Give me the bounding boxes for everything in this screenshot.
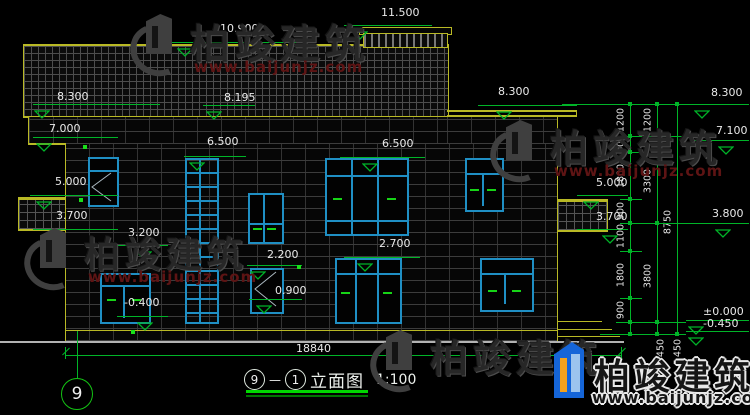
witness-line bbox=[620, 223, 712, 224]
elevation-label: 3.700 bbox=[56, 210, 88, 221]
watermark-url-text: www.baijunjz.com bbox=[554, 162, 723, 180]
witness-line bbox=[562, 104, 692, 105]
elevation-label: 0.900 bbox=[275, 285, 307, 296]
elevation-label: 8.195 bbox=[224, 92, 256, 103]
window-upper-small bbox=[248, 193, 284, 244]
elevation-marker-triangle bbox=[206, 105, 222, 114]
elevation-marker-triangle bbox=[496, 105, 512, 114]
elevation-marker-triangle bbox=[694, 104, 710, 113]
title-axis-end: 1 bbox=[285, 369, 306, 390]
elevation-marker-triangle bbox=[189, 156, 205, 165]
green-node-dot bbox=[83, 145, 87, 149]
title-name: 立面图 bbox=[310, 367, 364, 392]
flat-roof-edge bbox=[576, 110, 577, 117]
wall-left-edge-upper bbox=[28, 117, 29, 144]
elevation-marker-triangle bbox=[688, 331, 704, 340]
dim-chain-label: 900 bbox=[616, 202, 626, 220]
elevation-label: 3.800 bbox=[712, 208, 744, 219]
elevation-label: 8.300 bbox=[498, 86, 530, 97]
watermark-url-text: www.baijunjz.com bbox=[592, 388, 750, 407]
elevation-label: 8.300 bbox=[57, 91, 89, 102]
overall-dimension-value: 18840 bbox=[296, 343, 331, 354]
elevation-level-line bbox=[340, 157, 425, 158]
dim-chain-label: 8750 bbox=[663, 210, 673, 234]
brand-logo-icon bbox=[552, 340, 590, 404]
elevation-marker-triangle bbox=[715, 223, 731, 232]
window-ground-right bbox=[480, 258, 534, 312]
elevation-marker-triangle bbox=[36, 195, 52, 204]
watermark-url-text: www.baijunjz.com bbox=[194, 58, 363, 76]
elevation-level-line bbox=[344, 257, 420, 258]
casement-symbol-icon bbox=[90, 172, 113, 203]
green-node-dot bbox=[297, 265, 301, 269]
title-dash: — bbox=[269, 373, 281, 387]
elevation-label: 8.300 bbox=[711, 87, 743, 98]
witness-line bbox=[620, 251, 642, 252]
brand-logo-icon bbox=[368, 326, 428, 390]
elevation-label: 5.000 bbox=[55, 176, 87, 187]
elevation-label: -0.450 bbox=[703, 318, 738, 329]
elevation-marker-triangle bbox=[256, 299, 272, 308]
witness-line bbox=[620, 199, 642, 200]
dim-chain-label: 900 bbox=[616, 301, 626, 319]
flat-roof-line bbox=[447, 110, 577, 112]
elevation-label: 6.500 bbox=[382, 138, 414, 149]
elevation-label: 6.500 bbox=[207, 136, 239, 147]
watermark-url-text: www.baijunjz.com bbox=[88, 268, 257, 286]
elevation-marker-triangle bbox=[357, 257, 373, 266]
green-node-dot bbox=[131, 330, 135, 334]
brand-logo-icon bbox=[488, 116, 548, 180]
dim-chain-label: 1800 bbox=[616, 263, 626, 287]
elevation-marker-triangle bbox=[34, 104, 50, 113]
elevation-label: 7.000 bbox=[49, 123, 81, 134]
dim-chain-label: 3800 bbox=[643, 264, 653, 288]
elevation-label: 2.200 bbox=[267, 249, 299, 260]
witness-line bbox=[600, 334, 686, 335]
elevation-level-line bbox=[33, 104, 160, 105]
brand-logo-icon bbox=[128, 10, 188, 74]
grid-axis-bubble: 9 bbox=[61, 378, 93, 410]
elevation-marker-triangle bbox=[583, 195, 599, 204]
window-upper-left bbox=[88, 157, 119, 207]
witness-line bbox=[616, 322, 686, 323]
elevation-level-line bbox=[478, 105, 577, 106]
elevation-marker-triangle bbox=[36, 137, 52, 146]
title-axis-start: 9 bbox=[244, 369, 265, 390]
elevation-label: 2.700 bbox=[379, 238, 411, 249]
elevation-marker-triangle bbox=[688, 320, 704, 329]
dim-chain-label: 1100 bbox=[616, 224, 626, 248]
green-node-dot bbox=[79, 198, 83, 202]
elevation-label: -0.400 bbox=[124, 297, 159, 308]
elevation-marker-triangle bbox=[137, 316, 153, 325]
title-underline bbox=[246, 390, 368, 393]
elevation-label: ±0.000 bbox=[703, 306, 744, 317]
elevation-marker-triangle bbox=[362, 157, 378, 166]
elevation-drawing-canvas: 18840 9 9 — 1 立面图 1:100 10.90011.5008.30… bbox=[0, 0, 750, 415]
witness-line bbox=[620, 298, 642, 299]
brand-logo-icon bbox=[22, 224, 82, 288]
elevation-label: 11.500 bbox=[381, 7, 420, 18]
